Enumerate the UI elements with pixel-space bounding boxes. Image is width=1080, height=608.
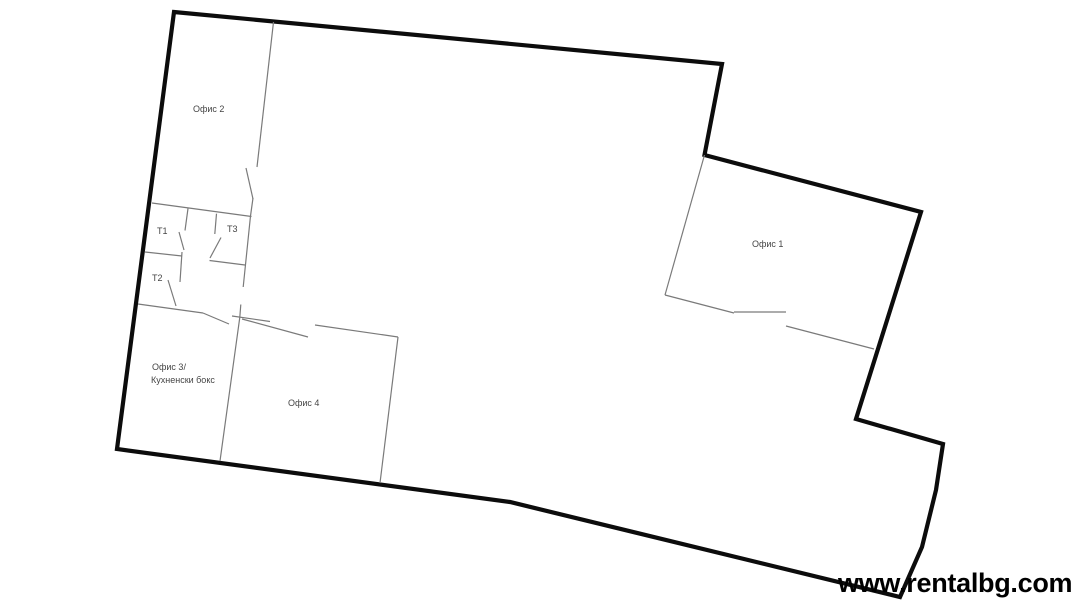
svg-text:Офис 4: Офис 4 [288, 398, 319, 408]
svg-text:Т2: Т2 [152, 273, 163, 283]
svg-text:Офис 3/: Офис 3/ [152, 362, 186, 372]
svg-text:Т1: Т1 [157, 226, 168, 236]
svg-text:Кухненски бокс: Кухненски бокс [151, 375, 215, 385]
svg-text:www.rentalbg.com: www.rentalbg.com [837, 568, 1072, 598]
svg-text:Офис 1: Офис 1 [752, 239, 783, 249]
svg-text:Офис 2: Офис 2 [193, 104, 224, 114]
svg-text:Т3: Т3 [227, 224, 238, 234]
